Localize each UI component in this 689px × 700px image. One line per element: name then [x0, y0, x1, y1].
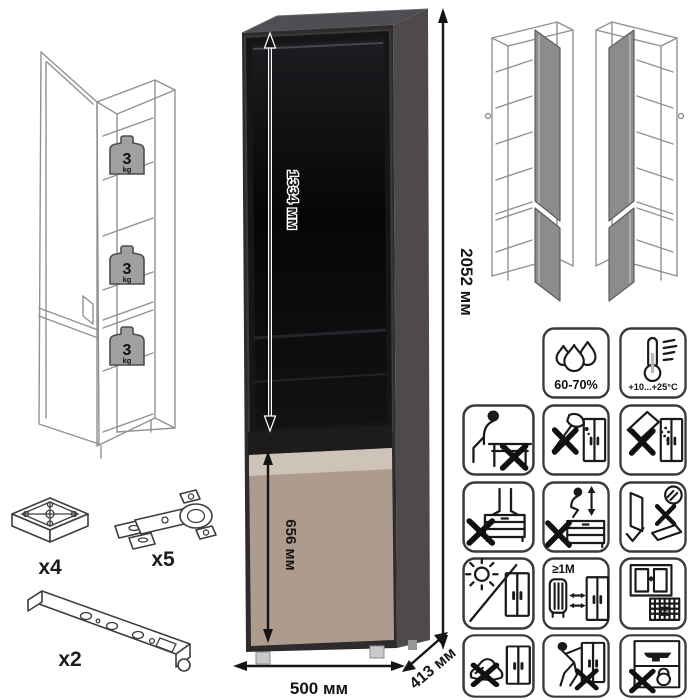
- heat-distance-icon: ≥1М: [542, 557, 610, 630]
- calendar-day-label: 21: [662, 609, 669, 616]
- door-knob: [679, 114, 684, 119]
- hinge-quantity-label: x5: [151, 548, 175, 571]
- no-abrasives-icon: [619, 404, 687, 476]
- cabinet-foot: [370, 646, 384, 658]
- temperature-badge: +10...+25°C: [619, 327, 687, 399]
- shelf-load-badge: 3 kg: [110, 136, 144, 174]
- carcass-bottom-side-edge: [155, 418, 175, 428]
- rail-quantity-label: x2: [58, 648, 81, 671]
- ventilation-icon: 21: [619, 557, 687, 630]
- glass-pane: [252, 39, 387, 428]
- shelves: [496, 60, 532, 252]
- lower-door: [249, 448, 394, 646]
- hinge-part: [115, 490, 216, 549]
- cabinet-dimension-view: 1334 мм 656 мм 2052 мм 500 мм 413 мм: [232, 0, 492, 700]
- carcass-bottom-back-edge: [117, 428, 175, 432]
- open-cabinet-wireframe: 3 kg 3 kg 3 kg: [5, 28, 215, 473]
- width-label: 500 мм: [290, 679, 348, 698]
- no-overloading-icon: [619, 634, 687, 698]
- no-sitting-icon: [462, 404, 535, 476]
- calendar-glyph: 21: [650, 599, 679, 620]
- temperature-range-label: +10...+25°C: [628, 382, 678, 392]
- min-distance-label: ≥1М: [552, 562, 575, 576]
- humidity-tolerance-badge: 60-70%: [542, 327, 610, 399]
- cabinet-foot: [256, 652, 270, 664]
- carry-doors-upright-icon: [619, 481, 687, 553]
- left-hinged-variant: [486, 22, 574, 301]
- door-variant-wireframes: [468, 8, 688, 308]
- shelf-load-badge: 3 kg: [110, 246, 144, 284]
- total-height-arrow: [438, 8, 448, 650]
- furniture-spec-sheet: 3 kg 3 kg 3 kg 1334 мм: [0, 0, 689, 700]
- wireframe-open-door: [39, 52, 99, 444]
- shelf-load-unit: kg: [123, 275, 132, 284]
- foot-glide-part: [12, 498, 88, 542]
- glass-door-height-label: 1334 мм: [284, 170, 301, 230]
- lower-door-height-label: 656 мм: [282, 519, 299, 570]
- no-kicking-icon: [462, 634, 535, 698]
- carcass-top-face: [97, 80, 175, 114]
- no-jumping-icon: [542, 481, 610, 553]
- shelf-load-unit: kg: [123, 165, 132, 174]
- right-hinged-variant: [596, 22, 684, 301]
- shelf-load-unit: kg: [123, 356, 132, 365]
- avoid-sunlight-icon: [462, 557, 535, 630]
- foot-quantity-label: x4: [38, 556, 62, 579]
- mounting-rail-part: [28, 591, 190, 671]
- no-tipping-icon: [542, 634, 610, 698]
- cabinet-side-panel: [393, 9, 430, 648]
- shelf-load-badge: 3 kg: [110, 327, 144, 365]
- door-knob: [486, 114, 491, 119]
- shelves: [637, 60, 673, 252]
- kettlebell-body: [657, 674, 670, 686]
- no-sharp-tools-icon: [542, 404, 610, 476]
- humidity-range-label: 60-70%: [554, 377, 598, 392]
- cabinet-foot-back: [408, 640, 417, 650]
- hardware-parts: x4 x5 x2: [0, 468, 230, 700]
- no-standing-icon: [462, 481, 535, 553]
